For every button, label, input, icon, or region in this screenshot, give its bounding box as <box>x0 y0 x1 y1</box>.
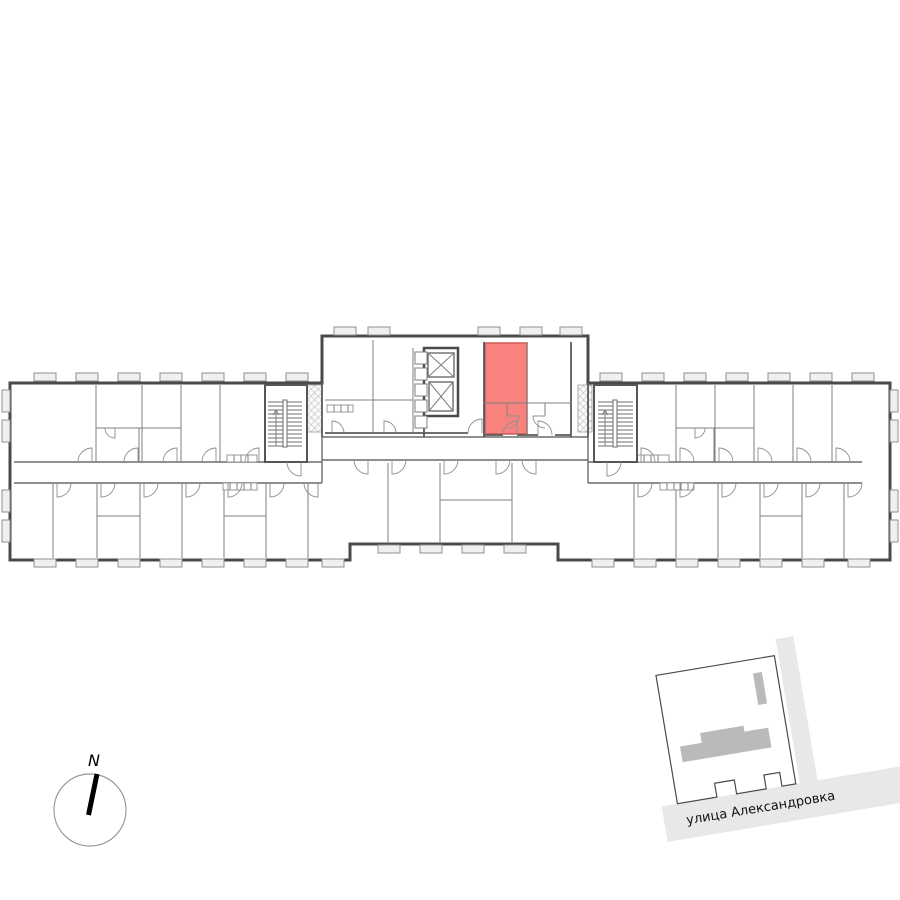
floor-plan-canvas: N улица Александровка <box>0 0 900 900</box>
stairwell-left <box>265 385 307 462</box>
compass-needle-icon <box>89 774 98 815</box>
minimap: улица Александровка <box>638 614 900 841</box>
page: N улица Александровка <box>0 0 900 900</box>
stairwell-right <box>594 385 637 462</box>
highlighted-unit[interactable] <box>485 343 527 434</box>
highlighted-unit-area[interactable] <box>485 343 527 434</box>
compass: N <box>54 751 126 846</box>
balcony-hatch-left <box>307 385 322 432</box>
building-plan <box>2 327 898 567</box>
elevator-core <box>415 348 458 428</box>
balcony-hatch-right <box>578 385 592 432</box>
compass-north-label: N <box>88 751 100 770</box>
shaft-column <box>415 352 427 428</box>
